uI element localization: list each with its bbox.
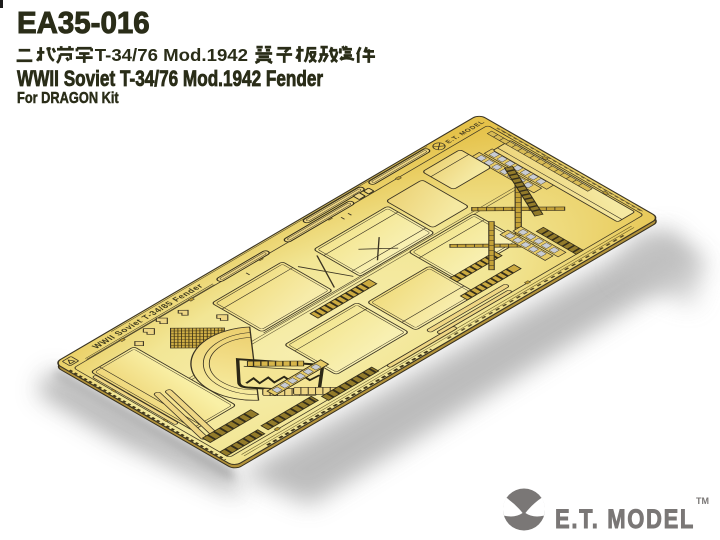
svg-text:TM: TM xyxy=(696,496,709,506)
svg-text:E.T. MODEL: E.T. MODEL xyxy=(555,504,695,534)
